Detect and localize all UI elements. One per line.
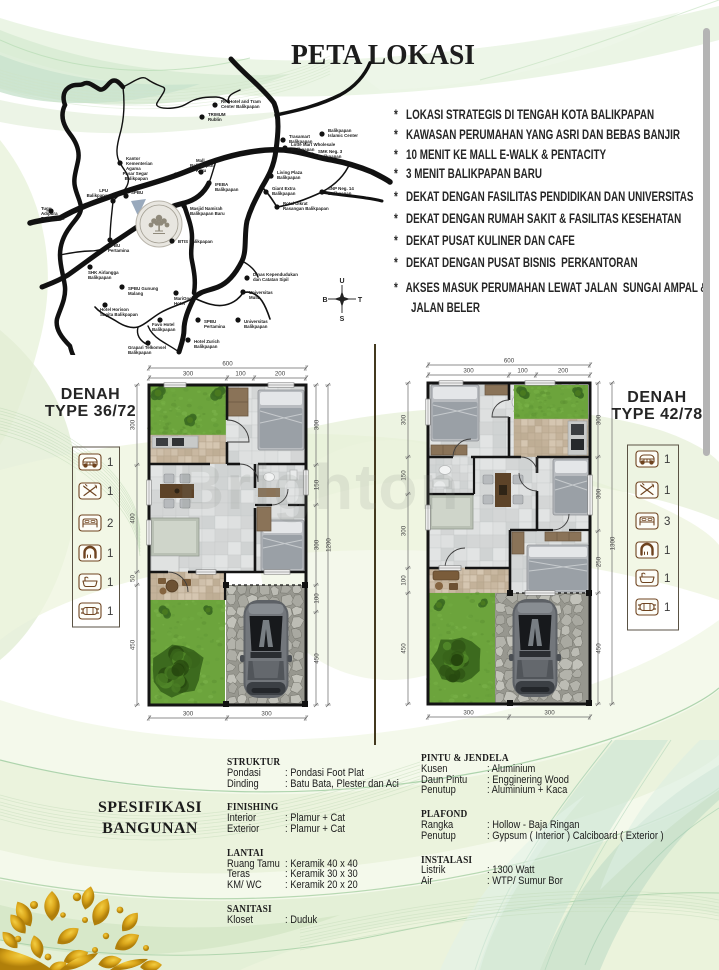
- svg-text:1: 1: [664, 573, 670, 585]
- svg-text:100: 100: [517, 368, 528, 375]
- svg-text:Balikpapan Baru: Balikpapan Baru: [190, 211, 225, 216]
- svg-text:Hotel: Hotel: [174, 301, 185, 306]
- svg-text:200: 200: [558, 368, 569, 375]
- svg-text:B: B: [322, 297, 327, 304]
- svg-text:100: 100: [235, 371, 246, 378]
- svg-text:Pertamina: Pertamina: [108, 248, 130, 253]
- svg-text:Balikpapan: Balikpapan: [291, 147, 315, 152]
- svg-text:300: 300: [401, 525, 408, 536]
- svg-text:Rublin: Rublin: [208, 117, 222, 122]
- svg-text:400: 400: [130, 513, 137, 524]
- svg-text:200: 200: [275, 371, 286, 378]
- svg-text:450: 450: [401, 643, 408, 654]
- svg-text:1: 1: [107, 548, 113, 560]
- svg-text:Sagita Balikpapan: Sagita Balikpapan: [100, 312, 138, 317]
- svg-text:300: 300: [596, 488, 603, 499]
- svg-text:1: 1: [664, 454, 670, 466]
- svg-text:Mulia: Mulia: [249, 295, 261, 300]
- svg-text:BTIS Balikpapan: BTIS Balikpapan: [178, 239, 213, 244]
- svg-text:Islamic Center: Islamic Center: [328, 133, 358, 138]
- svg-text:1200: 1200: [326, 538, 333, 552]
- svg-text:Balikpapan: Balikpapan: [272, 191, 296, 196]
- svg-text:U: U: [339, 278, 344, 285]
- svg-text:Balikpapan: Balikpapan: [128, 350, 152, 355]
- svg-text:1: 1: [107, 457, 113, 469]
- svg-text:450: 450: [596, 643, 603, 654]
- svg-text:2: 2: [107, 518, 113, 530]
- svg-text:1: 1: [107, 606, 113, 618]
- svg-text:Balikpapan: Balikpapan: [125, 176, 149, 181]
- svg-text:T: T: [358, 297, 363, 304]
- svg-text:3: 3: [664, 516, 670, 528]
- svg-text:Rasangan Balikpapan: Rasangan Balikpapan: [283, 206, 329, 211]
- svg-text:300: 300: [544, 710, 555, 717]
- svg-text:300: 300: [463, 368, 474, 375]
- svg-text:300: 300: [401, 414, 408, 425]
- svg-text:Pertamina: Pertamina: [204, 324, 226, 329]
- svg-text:Balikpapan: Balikpapan: [277, 175, 301, 180]
- svg-text:Balikpapan: Balikpapan: [41, 216, 65, 221]
- svg-text:300: 300: [130, 419, 137, 430]
- svg-text:S: S: [340, 316, 345, 323]
- svg-text:300: 300: [183, 711, 194, 718]
- svg-text:300: 300: [314, 419, 321, 430]
- svg-text:Balikpapan: Balikpapan: [328, 191, 352, 196]
- svg-text:450: 450: [314, 653, 321, 664]
- svg-text:100: 100: [401, 575, 408, 586]
- svg-text:Center Balikpapan: Center Balikpapan: [221, 104, 260, 109]
- svg-text:600: 600: [504, 358, 515, 365]
- svg-text:Balikpapan: Balikpapan: [88, 275, 112, 280]
- svg-text:1: 1: [664, 485, 670, 497]
- svg-text:Balikpapan: Balikpapan: [215, 187, 239, 192]
- svg-text:1: 1: [107, 486, 113, 498]
- svg-text:50: 50: [130, 575, 137, 582]
- svg-text:Balikpapan: Balikpapan: [194, 344, 218, 349]
- svg-text:Koru: Koru: [196, 168, 207, 173]
- svg-text:Balikpapan: Balikpapan: [152, 327, 176, 332]
- svg-text:1: 1: [664, 602, 670, 614]
- svg-text:300: 300: [314, 539, 321, 550]
- svg-text:Balikpapan: Balikpapan: [87, 193, 111, 198]
- svg-text:1: 1: [107, 577, 113, 589]
- svg-text:100: 100: [314, 593, 321, 604]
- svg-text:300: 300: [183, 371, 194, 378]
- svg-text:300: 300: [261, 711, 272, 718]
- svg-text:1: 1: [664, 545, 670, 557]
- svg-text:Malang: Malang: [128, 291, 143, 296]
- svg-text:250: 250: [596, 556, 603, 567]
- svg-text:SPBU: SPBU: [131, 190, 143, 195]
- svg-text:Balikpapan: Balikpapan: [244, 324, 268, 329]
- svg-text:600: 600: [222, 361, 233, 368]
- svg-text:dan Catatan Sipil: dan Catatan Sipil: [253, 277, 289, 282]
- svg-text:Balikpapan: Balikpapan: [318, 154, 342, 159]
- svg-text:450: 450: [130, 639, 137, 650]
- svg-text:300: 300: [463, 710, 474, 717]
